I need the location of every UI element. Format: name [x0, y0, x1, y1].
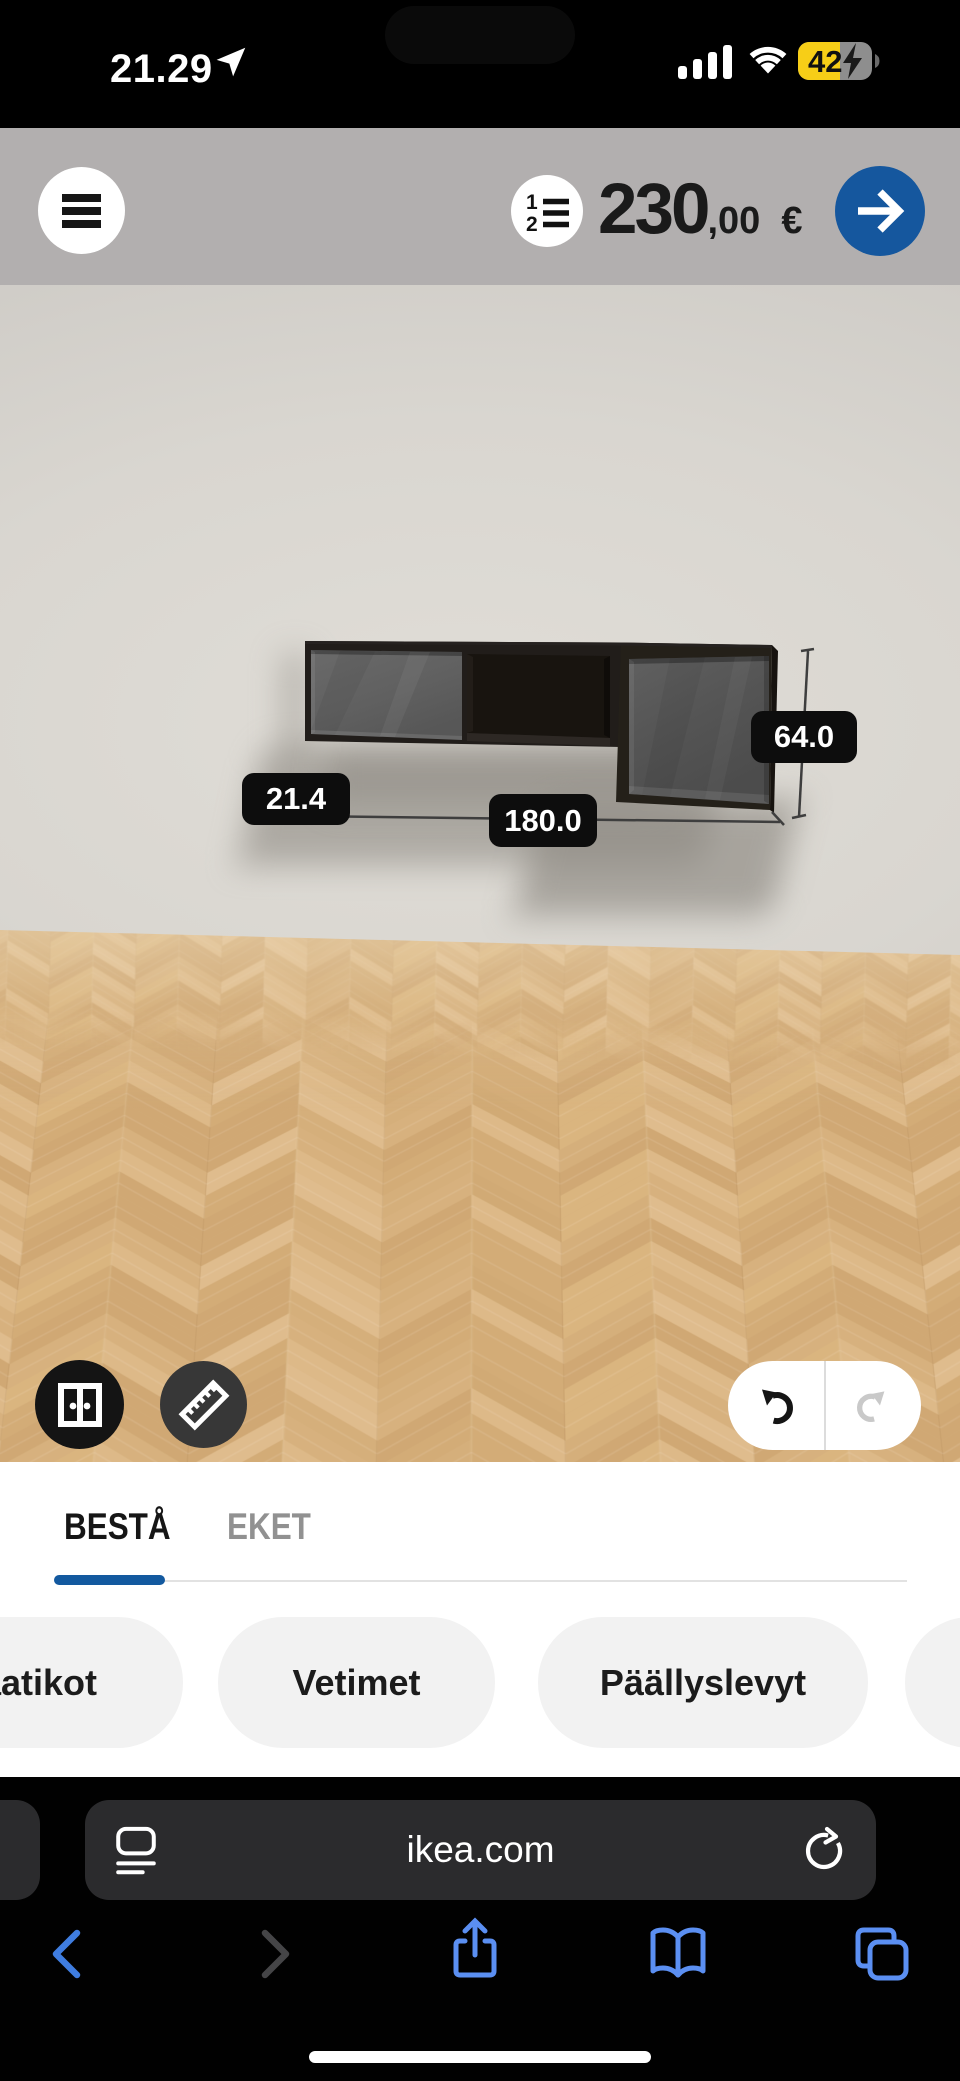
- svg-text:42: 42: [808, 44, 842, 79]
- svg-text:1: 1: [526, 191, 538, 214]
- svg-text:2: 2: [526, 213, 538, 236]
